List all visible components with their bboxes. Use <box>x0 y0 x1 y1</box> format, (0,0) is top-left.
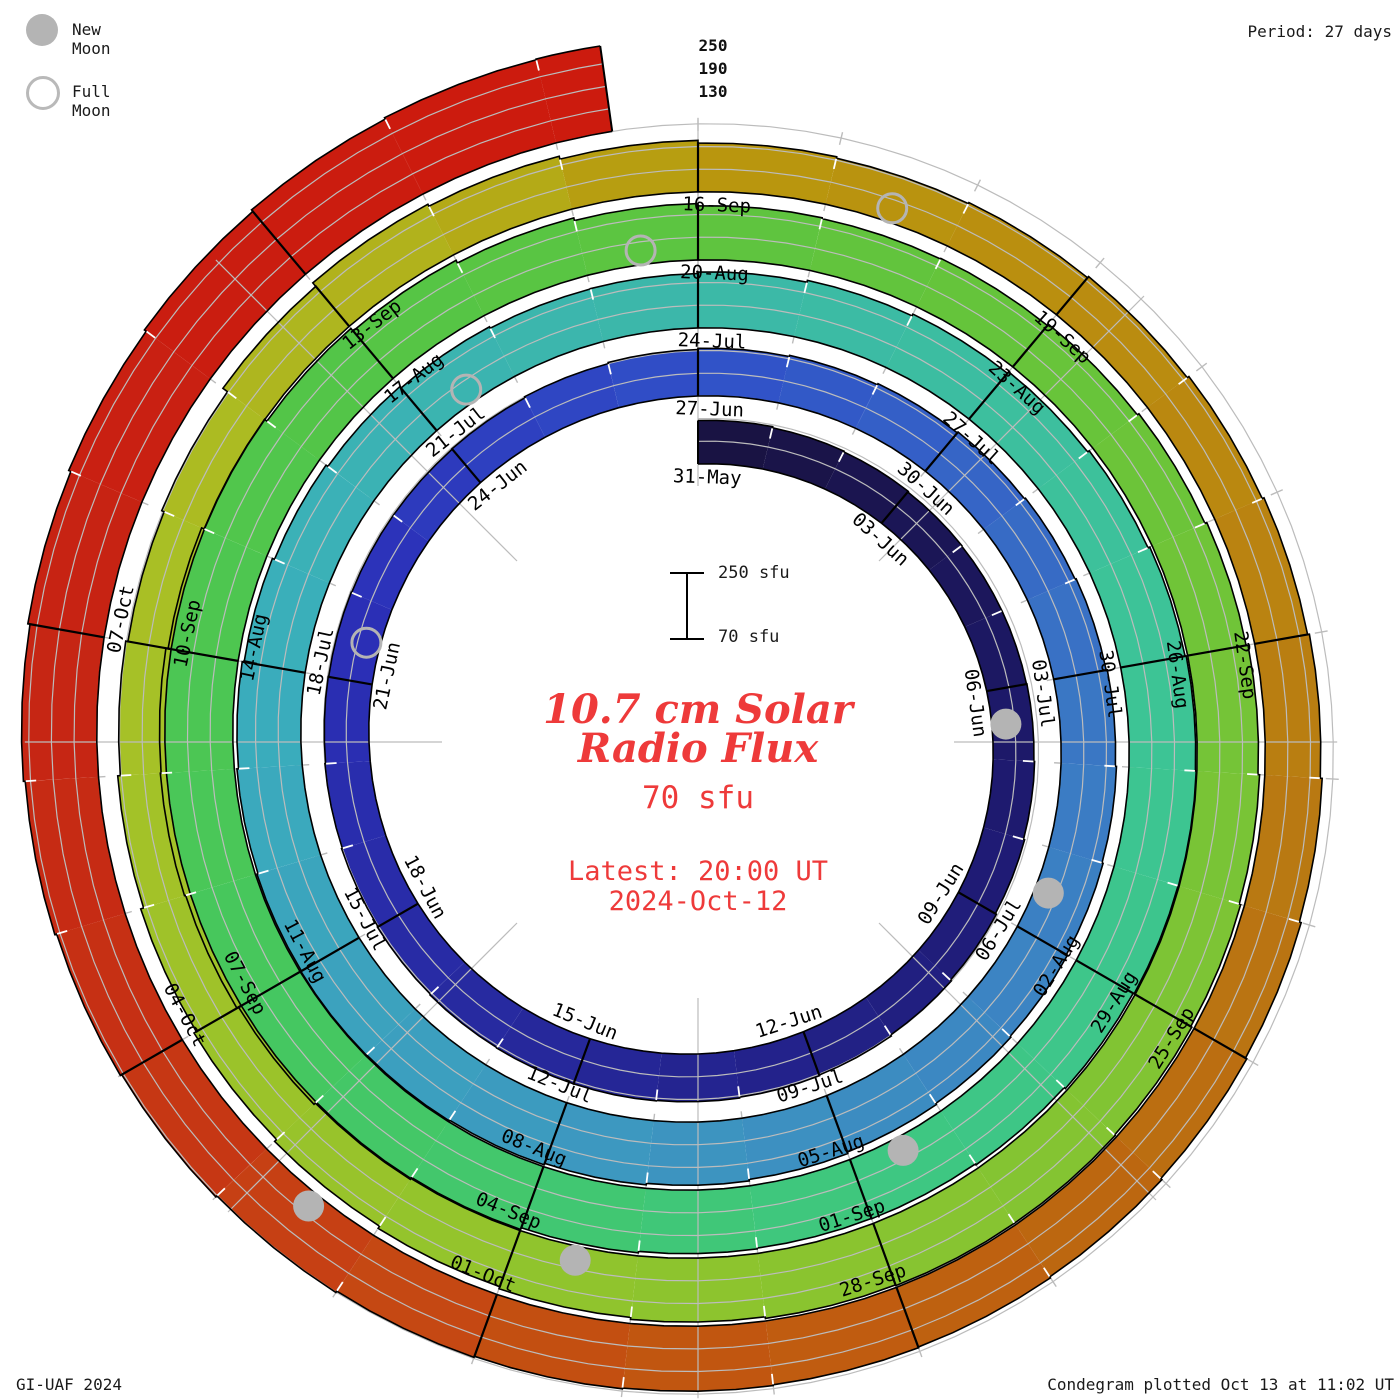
radial-axis-labels: 250 190 130 <box>676 34 750 103</box>
latest-time: Latest: 20:00 UT <box>448 857 948 887</box>
radial-axis-130: 130 <box>676 80 750 103</box>
credit-left: GI-UAF 2024 <box>16 1375 122 1394</box>
date-label-31-May: 31-May <box>673 465 742 489</box>
day-tick <box>1023 761 1034 762</box>
condegram-page: 31-May03-Jun06-Jun09-Jun12-Jun15-Jun18-J… <box>0 0 1400 1400</box>
day-tick <box>647 1173 648 1183</box>
new-moon-icon <box>26 14 58 46</box>
new-moon-marker <box>888 1135 919 1166</box>
day-tick <box>764 1306 765 1317</box>
date-label-24-Jul: 24-Jul <box>677 329 746 353</box>
latest-reading-block: Latest: 20:00 UT 2024-Oct-12 <box>448 857 948 917</box>
day-tick <box>1104 766 1115 767</box>
day-tick <box>756 1237 757 1247</box>
day-tick <box>631 1307 632 1318</box>
new-moon-marker <box>293 1191 324 1222</box>
date-label-16-Sep: 16-Sep <box>682 193 751 217</box>
day-tick <box>1184 770 1195 771</box>
flux-scale-min-label: 70 sfu <box>718 627 779 647</box>
legend-full-moon-label: Full Moon <box>72 82 111 120</box>
flux-day-segment <box>698 420 773 469</box>
day-tick <box>1309 778 1320 779</box>
day-tick <box>121 775 132 776</box>
current-flux-value: 70 sfu <box>448 780 948 816</box>
radial-axis-190: 190 <box>676 57 750 80</box>
day-tick <box>239 768 249 769</box>
day-tick <box>162 773 173 774</box>
date-label-27-Jun: 27-Jun <box>675 397 744 421</box>
day-tick <box>1247 774 1257 775</box>
date-label-20-Aug: 20-Aug <box>680 261 749 285</box>
credit-right: Condegram plotted Oct 13 at 11:02 UT <box>1047 1375 1394 1394</box>
day-tick <box>748 1169 749 1179</box>
flux-day-segment <box>160 648 239 773</box>
day-tick <box>26 781 37 782</box>
day-tick <box>772 1374 773 1384</box>
new-moon-marker <box>990 709 1021 740</box>
day-tick <box>326 763 337 764</box>
chart-title: 10.7 cm Solar Radio Flux <box>448 690 948 768</box>
legend-new-moon-label: New Moon <box>72 20 111 58</box>
chart-title-block: 10.7 cm Solar Radio Flux 70 sfu <box>448 690 948 816</box>
day-tick <box>656 1090 657 1101</box>
flux-scale-max-label: 250 sfu <box>718 563 790 583</box>
period-label: Period: 27 days <box>1248 22 1393 41</box>
day-tick <box>639 1241 640 1251</box>
radial-axis-250: 250 <box>676 34 750 57</box>
latest-date: 2024-Oct-12 <box>448 887 948 917</box>
flux-scale-bar <box>670 572 704 640</box>
new-moon-marker <box>1033 878 1064 909</box>
new-moon-marker <box>560 1245 591 1276</box>
full-moon-icon <box>26 76 60 110</box>
flux-day-segment <box>119 641 171 776</box>
